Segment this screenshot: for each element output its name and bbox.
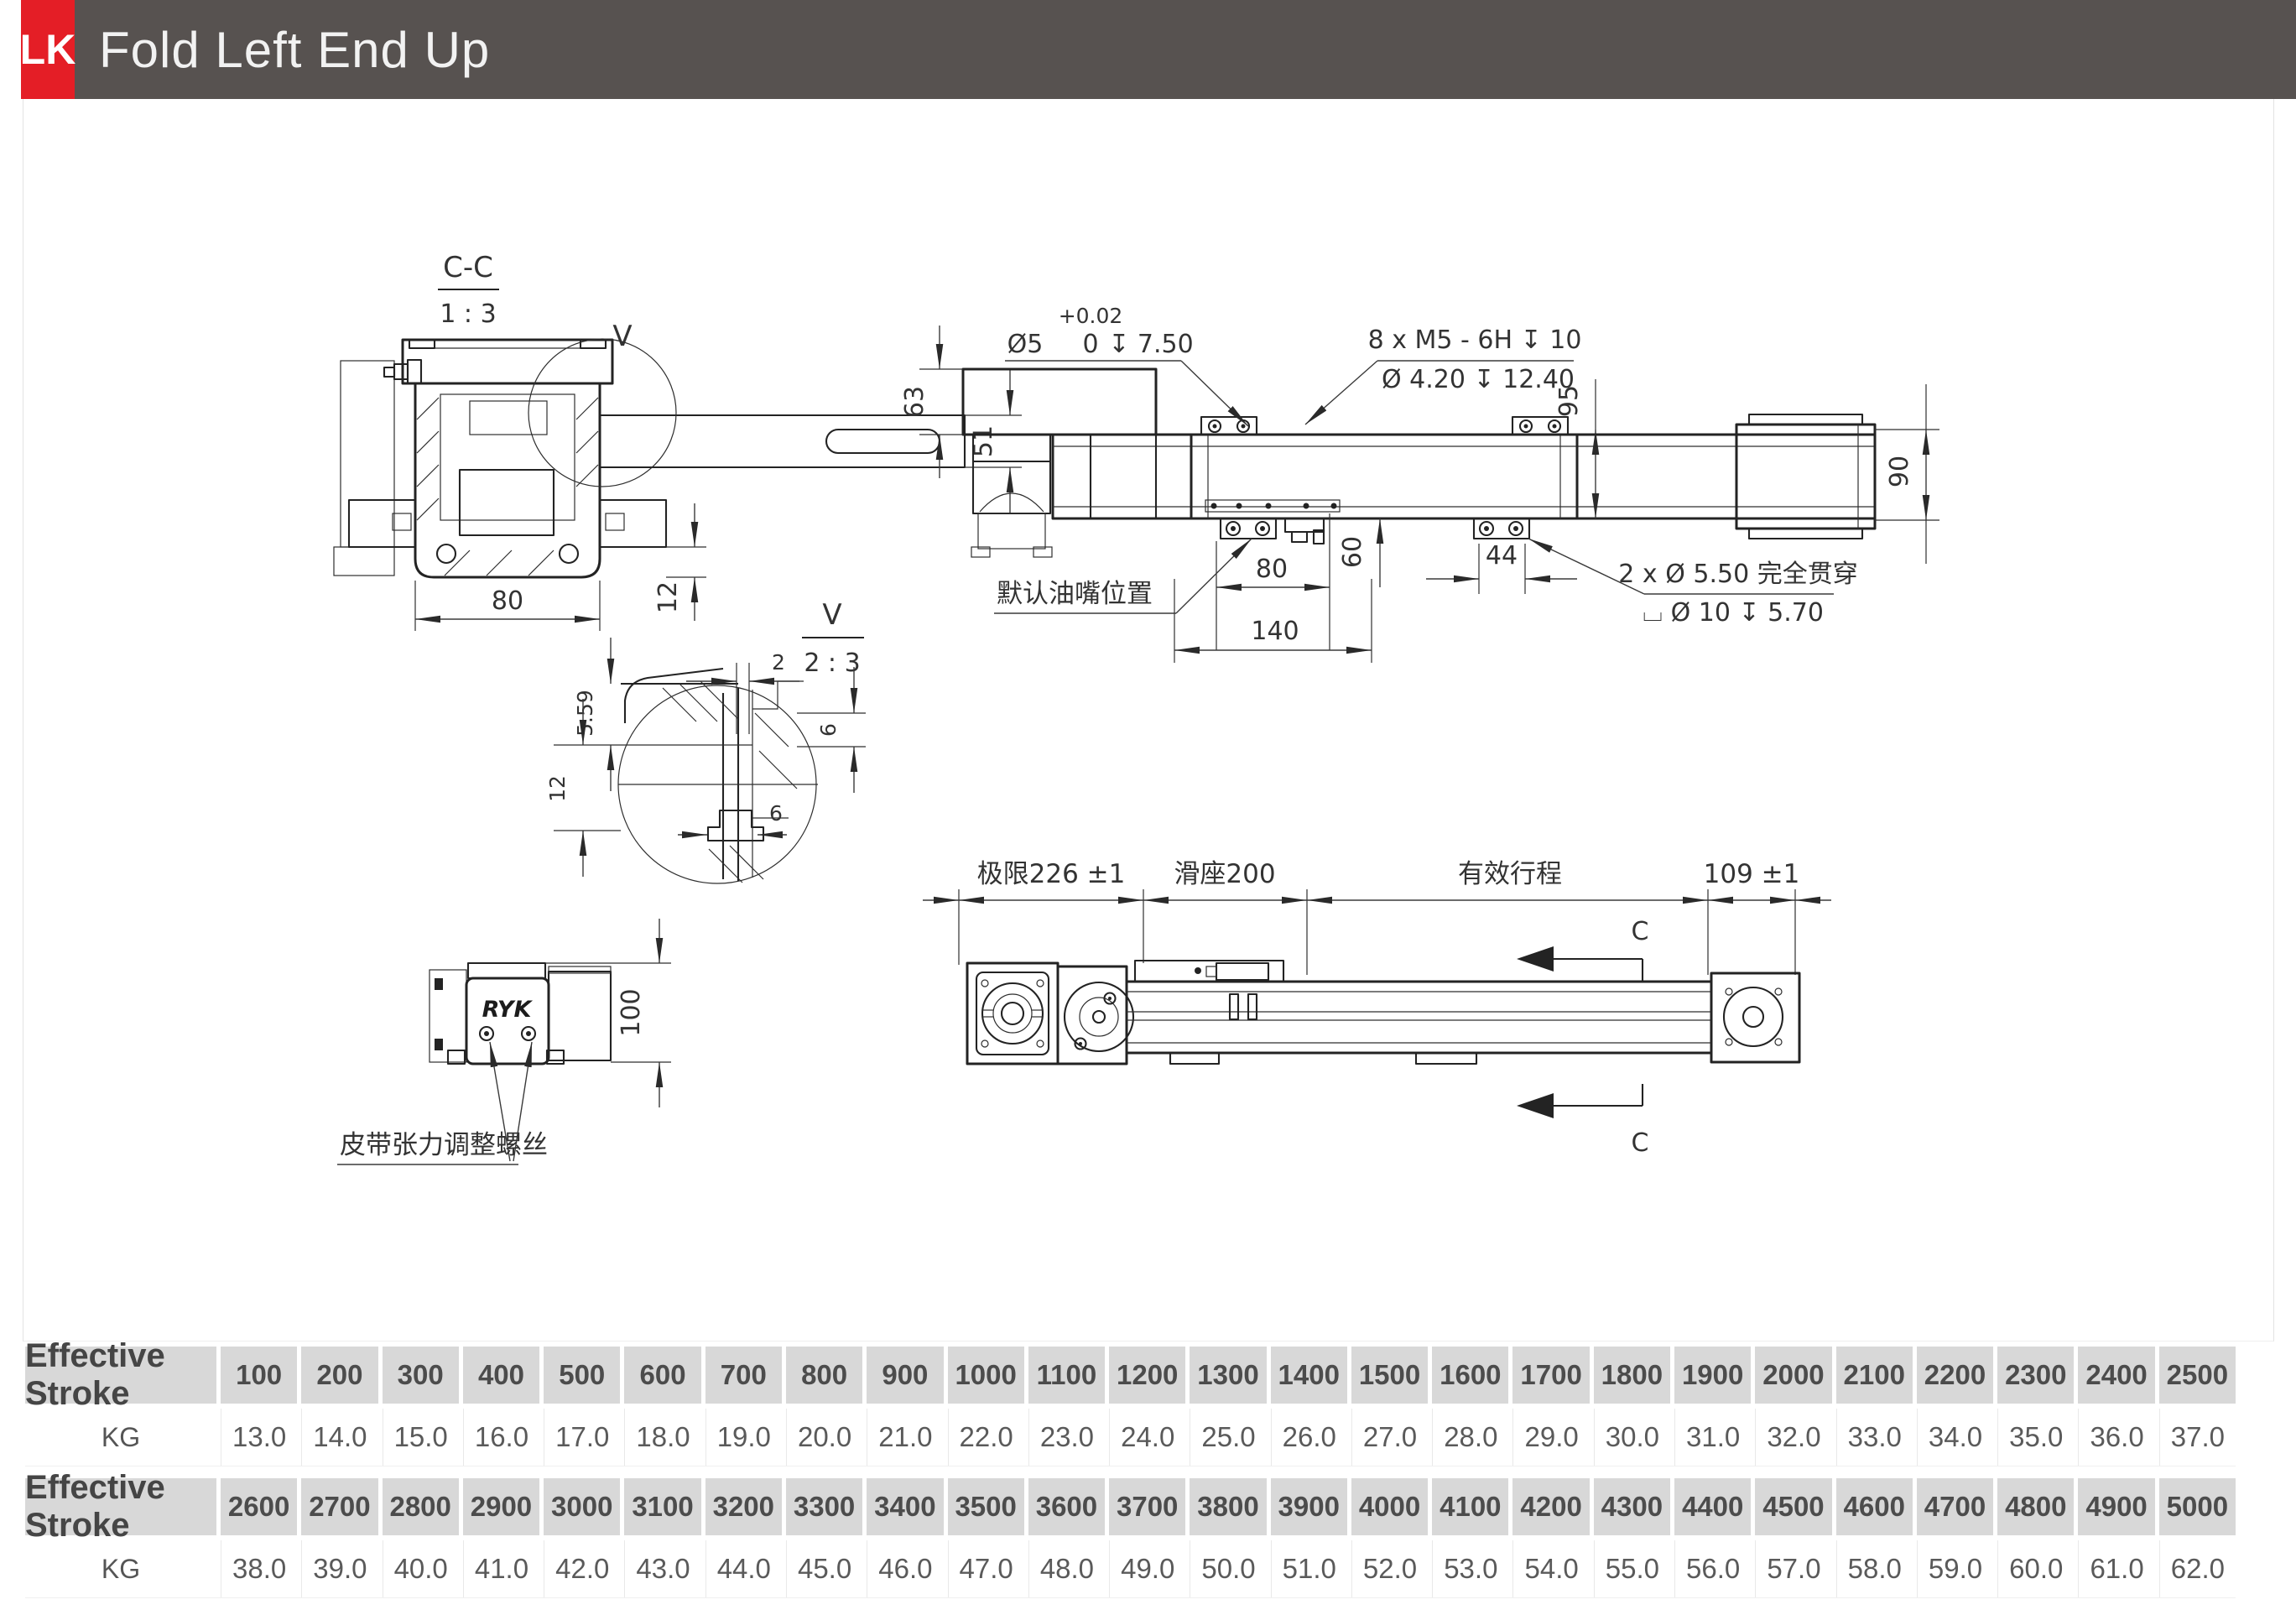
kg-value-cell: 43.0 <box>624 1540 700 1597</box>
kg-value-cell: 26.0 <box>1271 1409 1347 1466</box>
stroke-capacity-tables: Effective Stroke 10020030040050060070080… <box>25 1347 2236 1598</box>
kg-value-cell: 31.0 <box>1674 1409 1751 1466</box>
pin-callout-dia: Ø5 <box>1007 330 1044 359</box>
kg-value-cell: 16.0 <box>463 1409 539 1466</box>
stroke-value-cell: 4700 <box>1917 1478 1993 1535</box>
stroke-value-cell: 400 <box>463 1347 539 1404</box>
stroke-value-cell: 3200 <box>705 1478 782 1535</box>
kg-value-cell: 15.0 <box>383 1409 459 1466</box>
stroke-value-cell: 5000 <box>2159 1478 2236 1535</box>
stroke-value-cell: 1600 <box>1432 1347 1508 1404</box>
detail-v-scale: 2 : 3 <box>804 649 860 678</box>
motor-end-view: RYK 100 皮带张力调整螺丝 <box>337 919 671 1164</box>
kg-value-cell: 56.0 <box>1674 1540 1751 1597</box>
stroke-value-cell: 1000 <box>948 1347 1024 1404</box>
kg-value-cell: 45.0 <box>786 1540 862 1597</box>
stroke-value-cell: 1900 <box>1674 1347 1751 1404</box>
top-view: 63 +0.02 Ø5 0 ↧ 7.50 8 x M5 - 6H ↧ 10 Ø … <box>900 304 1939 663</box>
stroke-value-cell: 3900 <box>1271 1478 1347 1535</box>
kg-value-cell: 25.0 <box>1190 1409 1266 1466</box>
stroke-value-cell: 4300 <box>1594 1478 1670 1535</box>
dim-60-top: 60 <box>1338 536 1367 568</box>
kg-row-label: KG <box>25 1540 216 1597</box>
kg-value-cell: 41.0 <box>463 1540 539 1597</box>
pin-callout-tol-upper: +0.02 <box>1059 304 1123 328</box>
bottom-view-linework <box>967 961 1799 1064</box>
stroke-value-cell: 4200 <box>1512 1478 1589 1535</box>
kg-value-cell: 18.0 <box>624 1409 700 1466</box>
kg-value-cell: 27.0 <box>1351 1409 1428 1466</box>
kg-value-cell: 53.0 <box>1432 1540 1508 1597</box>
kg-value-cell: 52.0 <box>1351 1540 1428 1597</box>
kg-row-label: KG <box>25 1409 216 1466</box>
stroke-value-cell: 1200 <box>1109 1347 1185 1404</box>
kg-value-cell: 37.0 <box>2159 1409 2236 1466</box>
dim-80-section: 80 <box>492 586 523 616</box>
page-header: LK Fold Left End Up <box>0 0 2296 99</box>
kg-value-cell: 22.0 <box>948 1409 1024 1466</box>
technical-drawing: C-C 1 : 3 V <box>0 0 2296 1342</box>
dim-limit-label: 极限226 ±1 <box>977 859 1126 889</box>
kg-value-cell: 50.0 <box>1190 1540 1266 1597</box>
kg-value-cell: 29.0 <box>1512 1409 1589 1466</box>
kg-value-cell: 13.0 <box>221 1409 297 1466</box>
kg-value-cell: 57.0 <box>1755 1540 1831 1597</box>
kg-value-cell: 30.0 <box>1594 1409 1670 1466</box>
motor-logo: RYK <box>482 997 534 1023</box>
stroke-value-cell: 3300 <box>786 1478 862 1535</box>
grease-position-label: 默认油嘴位置 <box>997 579 1153 609</box>
kg-value-cell: 48.0 <box>1028 1540 1105 1597</box>
through-callout-line1: 2 x Ø 5.50 完全贯穿 <box>1618 560 1857 589</box>
kg-value-cell: 62.0 <box>2159 1540 2236 1597</box>
stroke-value-cell: 2400 <box>2078 1347 2154 1404</box>
top-view-dimensions: 63 +0.02 Ø5 0 ↧ 7.50 8 x M5 - 6H ↧ 10 Ø … <box>900 304 1939 663</box>
through-callout-line2: ⌴ Ø 10 ↧ 5.70 <box>1643 598 1824 628</box>
kg-value-cell: 36.0 <box>2078 1409 2154 1466</box>
dim-90-top: 90 <box>1885 456 1914 487</box>
stroke-value-cell: 4000 <box>1351 1478 1428 1535</box>
page-title: Fold Left End Up <box>99 0 490 99</box>
stroke-value-cell: 2200 <box>1917 1347 1993 1404</box>
stroke-value-cell: 1500 <box>1351 1347 1428 1404</box>
kg-value-cell: 58.0 <box>1836 1540 1913 1597</box>
stroke-value-cell: 3100 <box>624 1478 700 1535</box>
kg-value-cell: 33.0 <box>1836 1409 1913 1466</box>
stroke-header-label: Effective Stroke <box>25 1478 216 1535</box>
stroke-value-cell: 3600 <box>1028 1478 1105 1535</box>
stroke-value-cell: 4600 <box>1836 1478 1913 1535</box>
thread-callout-line2: Ø 4.20 ↧ 12.40 <box>1382 365 1575 394</box>
stroke-value-cell: 4100 <box>1432 1478 1508 1535</box>
kg-value-cell: 51.0 <box>1271 1540 1347 1597</box>
dim-12-section: 12 <box>653 581 683 613</box>
bottom-view: 极限226 ±1 滑座200 有效行程 109 ±1 <box>923 859 1831 1158</box>
stroke-value-cell: 2900 <box>463 1478 539 1535</box>
kg-value-cell: 54.0 <box>1512 1540 1589 1597</box>
dim-5-59-detail: 5.59 <box>573 690 597 737</box>
kg-row-1: KG 13.014.015.016.017.018.019.020.021.02… <box>25 1409 2236 1467</box>
dim-80-top: 80 <box>1256 555 1288 584</box>
stroke-value-cell: 700 <box>705 1347 782 1404</box>
kg-value-cell: 20.0 <box>786 1409 862 1466</box>
stroke-value-cell: 2000 <box>1755 1347 1831 1404</box>
kg-value-cell: 19.0 <box>705 1409 782 1466</box>
stroke-value-cell: 2300 <box>1997 1347 2074 1404</box>
header-left-margin <box>0 0 21 99</box>
kg-value-cell: 39.0 <box>301 1540 377 1597</box>
belt-tension-label: 皮带张力调整螺丝 <box>340 1130 548 1160</box>
stroke-value-cell: 2100 <box>1836 1347 1913 1404</box>
section-line-c: C C <box>1517 917 1648 1158</box>
stroke-value-cell: 600 <box>624 1347 700 1404</box>
stroke-header-label: Effective Stroke <box>25 1347 216 1404</box>
kg-value-cell: 60.0 <box>1997 1540 2074 1597</box>
stroke-value-cell: 300 <box>383 1347 459 1404</box>
section-c-mark-upper: C <box>1632 917 1649 946</box>
detail-v-view: V 2 : 3 2 5.59 <box>545 598 866 883</box>
detail-v-title: V <box>822 598 841 632</box>
kg-value-cell: 61.0 <box>2078 1540 2154 1597</box>
dim-carriage-label: 滑座200 <box>1174 859 1275 889</box>
stroke-value-cell: 500 <box>544 1347 620 1404</box>
stroke-value-cell: 2500 <box>2159 1347 2236 1404</box>
dim-6-detail: 6 <box>816 723 841 737</box>
kg-value-cell: 59.0 <box>1917 1540 1993 1597</box>
stroke-value-cell: 1400 <box>1271 1347 1347 1404</box>
stroke-value-cell: 4500 <box>1755 1478 1831 1535</box>
stroke-value-cell: 900 <box>867 1347 943 1404</box>
stroke-value-cell: 1700 <box>1512 1347 1589 1404</box>
kg-value-cell: 35.0 <box>1997 1409 2074 1466</box>
kg-value-cell: 38.0 <box>221 1540 297 1597</box>
pin-callout-tol-lower: 0 <box>1082 330 1098 359</box>
kg-value-cell: 34.0 <box>1917 1409 1993 1466</box>
kg-value-cell: 23.0 <box>1028 1409 1105 1466</box>
stroke-value-cell: 1800 <box>1594 1347 1670 1404</box>
kg-value-cell: 49.0 <box>1109 1540 1185 1597</box>
stroke-header-row-1: Effective Stroke 10020030040050060070080… <box>25 1347 2236 1404</box>
kg-value-cell: 55.0 <box>1594 1540 1670 1597</box>
stroke-value-cell: 3500 <box>948 1478 1024 1535</box>
stroke-value-cell: 4900 <box>2078 1478 2154 1535</box>
kg-value-cell: 14.0 <box>301 1409 377 1466</box>
kg-value-cell: 46.0 <box>867 1540 943 1597</box>
stroke-value-cell: 100 <box>221 1347 297 1404</box>
kg-value-cell: 24.0 <box>1109 1409 1185 1466</box>
section-c-mark-lower: C <box>1632 1128 1649 1158</box>
dim-2-detail: 2 <box>772 650 785 675</box>
stroke-value-cell: 2700 <box>301 1478 377 1535</box>
stroke-value-cell: 800 <box>786 1347 862 1404</box>
bottom-view-dimensions: 极限226 ±1 滑座200 有效行程 109 ±1 <box>923 859 1831 975</box>
dim-6-inner-detail: 6 <box>769 801 783 826</box>
stroke-value-cell: 1100 <box>1028 1347 1105 1404</box>
series-badge: LK <box>21 0 75 99</box>
kg-value-cell: 40.0 <box>383 1540 459 1597</box>
section-cc-scale: 1 : 3 <box>440 300 496 329</box>
dim-140-top: 140 <box>1251 617 1299 646</box>
thread-callout-line1: 8 x M5 - 6H ↧ 10 <box>1368 326 1582 355</box>
kg-value-cell: 47.0 <box>948 1540 1024 1597</box>
stroke-value-cell: 200 <box>301 1347 377 1404</box>
dim-100-motor: 100 <box>617 988 646 1036</box>
stroke-value-cell: 2800 <box>383 1478 459 1535</box>
section-cc-dimensions: 80 12 51 <box>415 369 1022 631</box>
kg-value-cell: 42.0 <box>544 1540 620 1597</box>
stroke-value-cell: 1300 <box>1190 1347 1266 1404</box>
kg-value-cell: 44.0 <box>705 1540 782 1597</box>
dim-stroke-label: 有效行程 <box>1458 859 1562 889</box>
stroke-value-cell: 3000 <box>544 1478 620 1535</box>
stroke-value-cell: 3400 <box>867 1478 943 1535</box>
dim-44-top: 44 <box>1486 541 1518 570</box>
stroke-value-cell: 3800 <box>1190 1478 1266 1535</box>
kg-value-cell: 21.0 <box>867 1409 943 1466</box>
detail-v-mark: V <box>612 320 632 353</box>
kg-value-cell: 32.0 <box>1755 1409 1831 1466</box>
kg-row-2: KG 38.039.040.041.042.043.044.045.046.04… <box>25 1540 2236 1598</box>
stroke-value-cell: 2600 <box>221 1478 297 1535</box>
motor-dimensions: 100 皮带张力调整螺丝 <box>337 919 671 1164</box>
dim-95-top: 95 <box>1554 385 1584 417</box>
dim-12-detail: 12 <box>545 775 570 802</box>
dim-63-top: 63 <box>900 386 929 418</box>
pin-callout-depth: ↧ 7.50 <box>1108 330 1193 359</box>
section-cc-linework <box>334 339 965 577</box>
dim-end-label: 109 ±1 <box>1704 859 1800 889</box>
section-cc-title: C-C <box>443 251 493 284</box>
stroke-value-cell: 3700 <box>1109 1478 1185 1535</box>
kg-value-cell: 17.0 <box>544 1409 620 1466</box>
kg-value-cell: 28.0 <box>1432 1409 1508 1466</box>
section-cc-view: C-C 1 : 3 V <box>334 251 1022 631</box>
stroke-header-row-2: Effective Stroke 26002700280029003000310… <box>25 1478 2236 1535</box>
stroke-value-cell: 4800 <box>1997 1478 2074 1535</box>
top-view-linework <box>963 369 1875 557</box>
stroke-value-cell: 4400 <box>1674 1478 1751 1535</box>
